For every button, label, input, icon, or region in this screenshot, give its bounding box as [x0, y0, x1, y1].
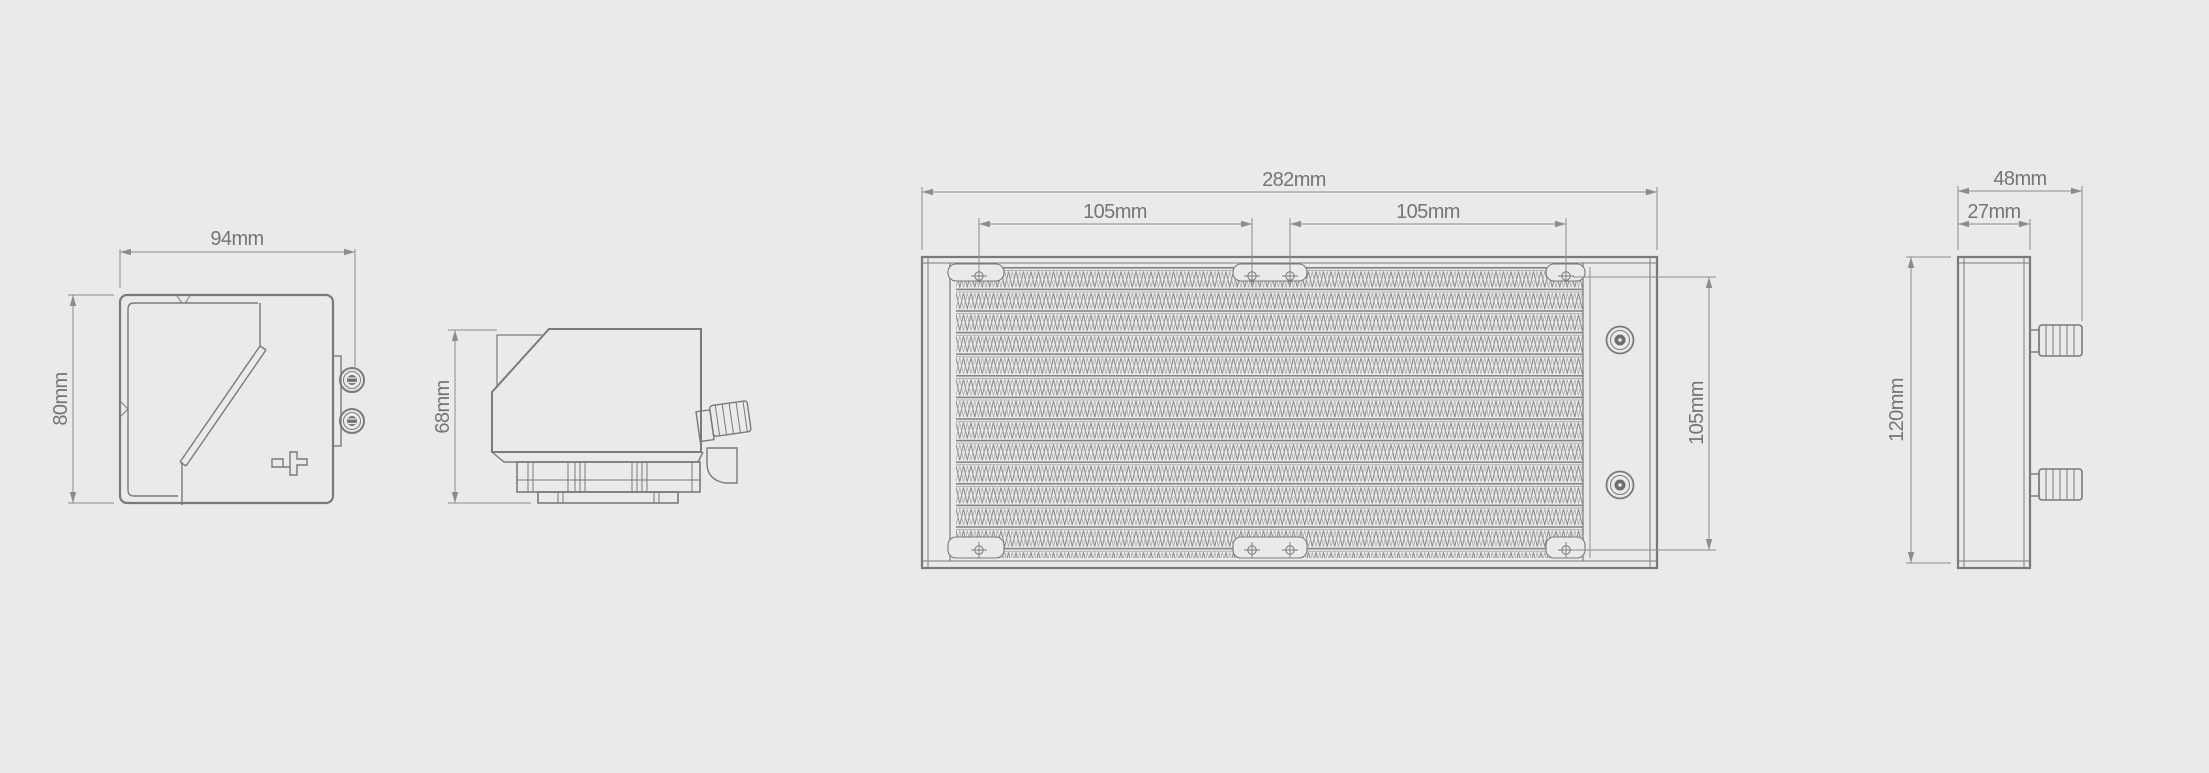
pump-height-label: 80mm — [50, 372, 72, 425]
pump-hose-fitting-bottom — [340, 409, 364, 433]
technical-drawing-canvas: 94mm 80mm 68mm — [0, 0, 2209, 773]
radiator-thickness-label: 27mm — [1967, 201, 2020, 223]
pump-hose-fitting-top — [340, 368, 364, 392]
radiator-port-top — [1607, 327, 1634, 354]
radiator-port-bottom — [1607, 472, 1634, 499]
radiator-depth-label: 48mm — [1993, 168, 2046, 190]
radiator-mount-right-label: 105mm — [1396, 201, 1460, 223]
radiator-front-view — [922, 257, 1657, 568]
pump-side-height-label: 68mm — [432, 380, 454, 433]
radiator-height-label: 120mm — [1886, 378, 1908, 442]
radiator-mount-left-label: 105mm — [1083, 201, 1147, 223]
radiator-length-label: 282mm — [1262, 169, 1326, 191]
radiator-fin-area — [956, 267, 1583, 558]
product-dimensions-diagram: Dimensions du produit — [0, 0, 2209, 773]
pump-width-label: 94mm — [210, 228, 263, 250]
radiator-mount-height-label: 105mm — [1686, 381, 1708, 445]
